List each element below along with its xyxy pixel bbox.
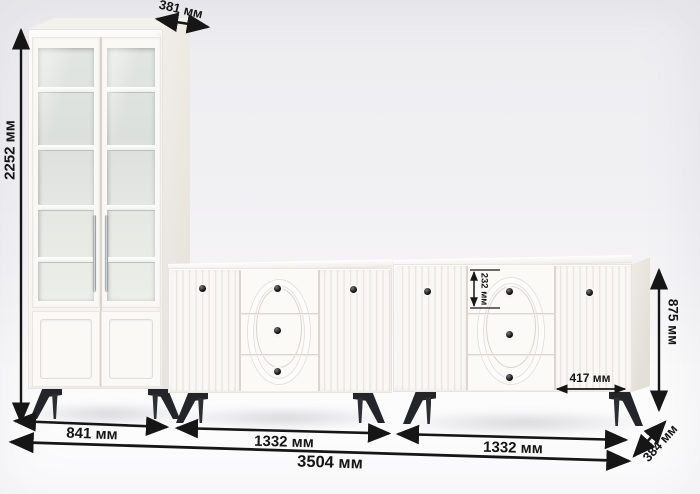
dim-label-sideboard2-width: 1332 мм [483,439,543,458]
dim-label-total-width: 3504 мм [297,453,363,474]
furniture-diagram: 2252 мм 381 мм 875 мм 232 мм 417 мм 841 … [0,0,700,494]
dim-label-cabinet-width: 841 мм [66,425,118,444]
dim-label-sideboard1-width: 1332 мм [254,433,314,452]
dim-label-drawer-height: 232 мм [479,273,490,306]
dim-label-sideboard-height: 875 мм [666,299,681,345]
dim-label-cabinet-height: 2252 мм [2,120,19,180]
dim-label-right-door-width: 417 мм [569,371,610,385]
dimension-arrows [0,0,700,494]
